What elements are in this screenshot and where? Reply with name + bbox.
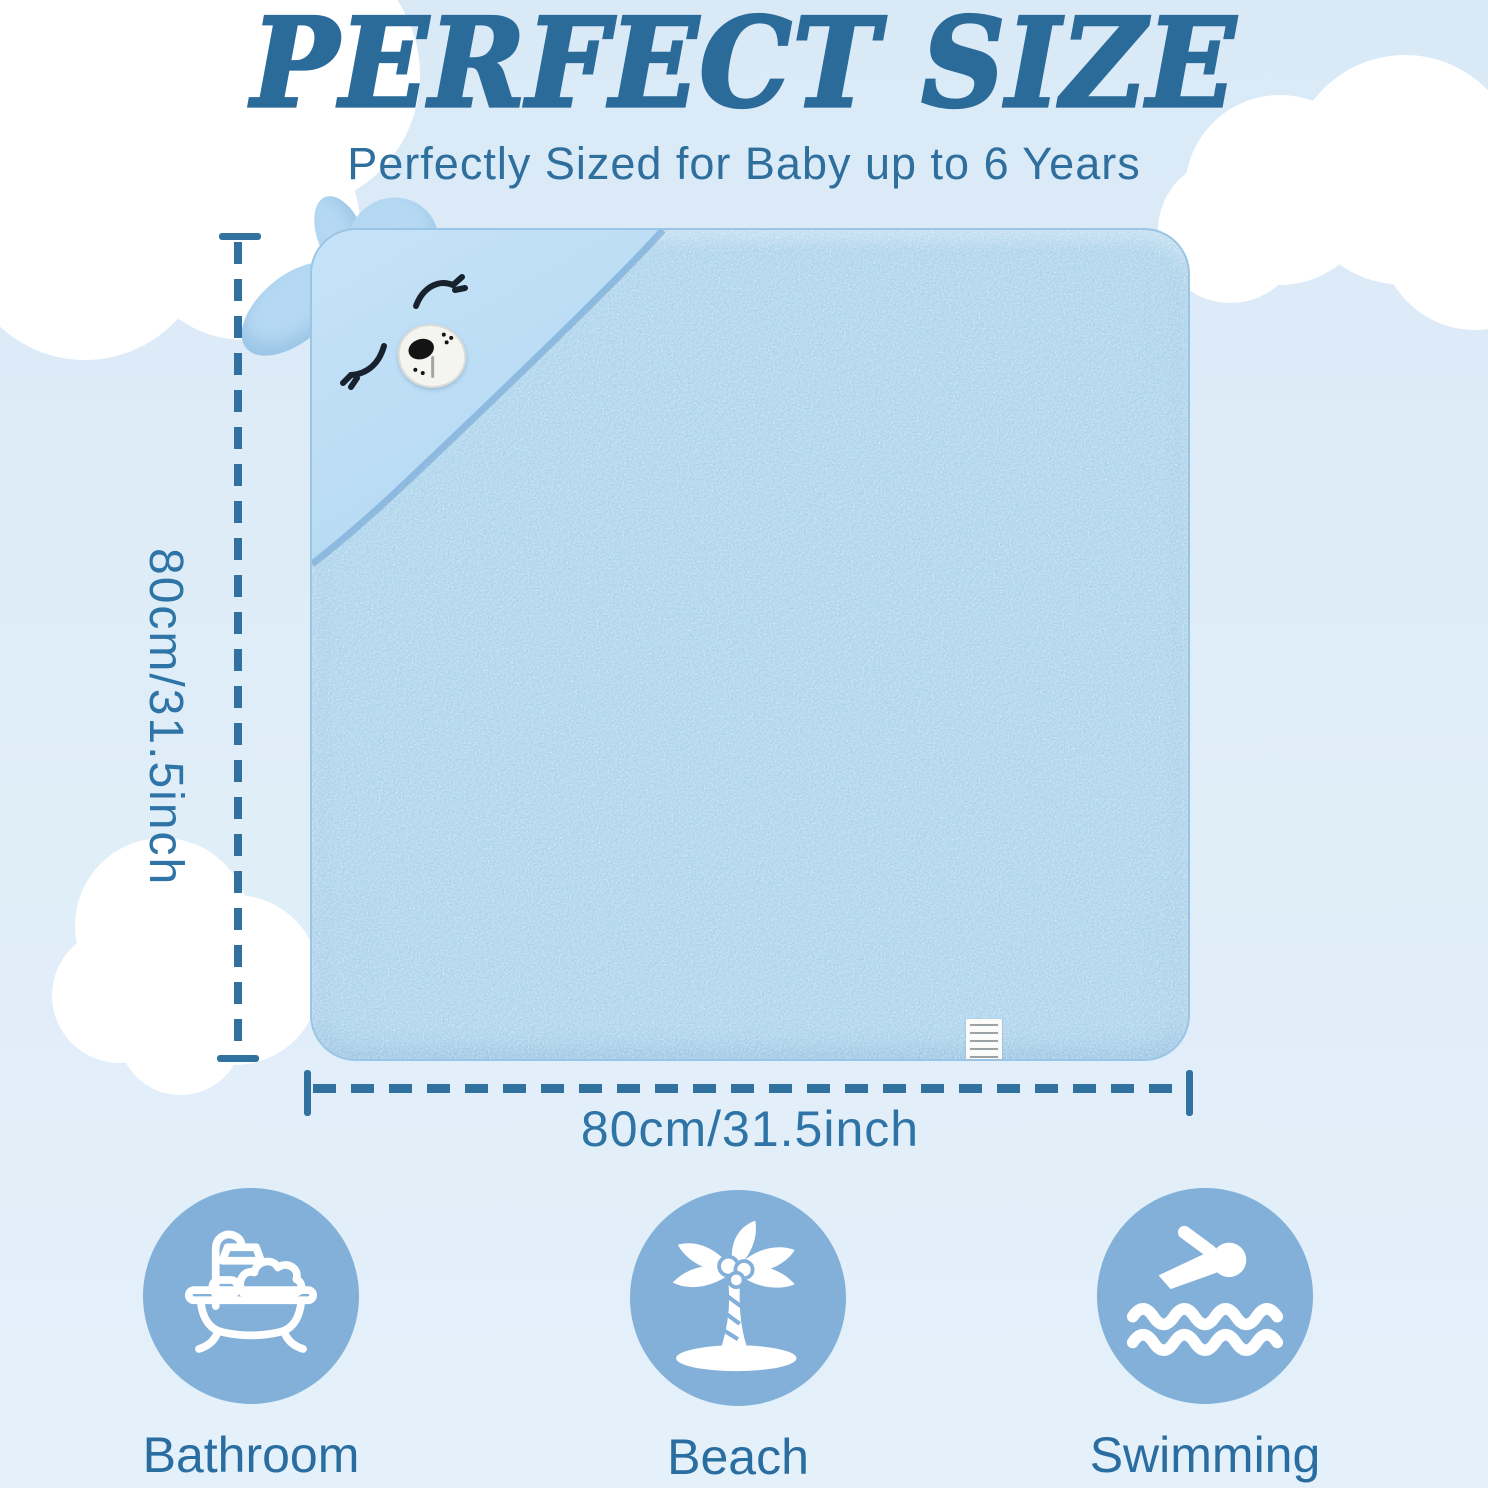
- muzzle-dot: [421, 371, 425, 375]
- palm-tree-icon: [652, 1212, 824, 1384]
- feature-label-swimming: Swimming: [1045, 1426, 1365, 1484]
- feature-label-bathroom: Bathroom: [91, 1426, 411, 1484]
- towel-image: [310, 228, 1190, 1061]
- muzzle-dot: [444, 340, 448, 344]
- page-title: PERFECT SIZE: [0, 0, 1488, 128]
- product-size-infographic: PERFECT SIZE Perfectly Sized for Baby up…: [0, 0, 1488, 1488]
- bathroom-circle: [143, 1188, 359, 1404]
- bear-hood: [310, 228, 672, 576]
- height-dimension-label: 80cm/31.5inch: [138, 548, 193, 886]
- feature-swimming: Swimming: [1045, 1188, 1365, 1484]
- swimming-circle: [1097, 1188, 1313, 1404]
- feature-bathroom: Bathroom: [91, 1188, 411, 1484]
- beach-circle: [630, 1190, 846, 1406]
- care-label: [966, 1019, 1002, 1061]
- cloud-lobe: [118, 970, 243, 1095]
- page-subtitle: Perfectly Sized for Baby up to 6 Years: [0, 138, 1488, 190]
- width-dimension-line: [313, 1084, 1186, 1093]
- height-dimension-line: [234, 242, 242, 1054]
- feature-beach: Beach: [578, 1190, 898, 1486]
- bear-eye-left: [340, 338, 392, 390]
- muzzle-dot: [449, 336, 453, 340]
- height-dimension-cap-top: [219, 233, 261, 240]
- swimmer-icon: [1119, 1210, 1291, 1382]
- care-label-text-lines: [970, 1024, 998, 1061]
- bathtub-shower-icon: [167, 1212, 335, 1380]
- bear-eye-right: [410, 270, 468, 314]
- bear-philtrum: [431, 356, 434, 378]
- width-dimension-label: 80cm/31.5inch: [310, 1100, 1190, 1158]
- muzzle-dot: [442, 332, 446, 336]
- feature-label-beach: Beach: [578, 1428, 898, 1486]
- height-dimension-cap-bottom: [217, 1055, 259, 1062]
- muzzle-dot: [413, 368, 417, 372]
